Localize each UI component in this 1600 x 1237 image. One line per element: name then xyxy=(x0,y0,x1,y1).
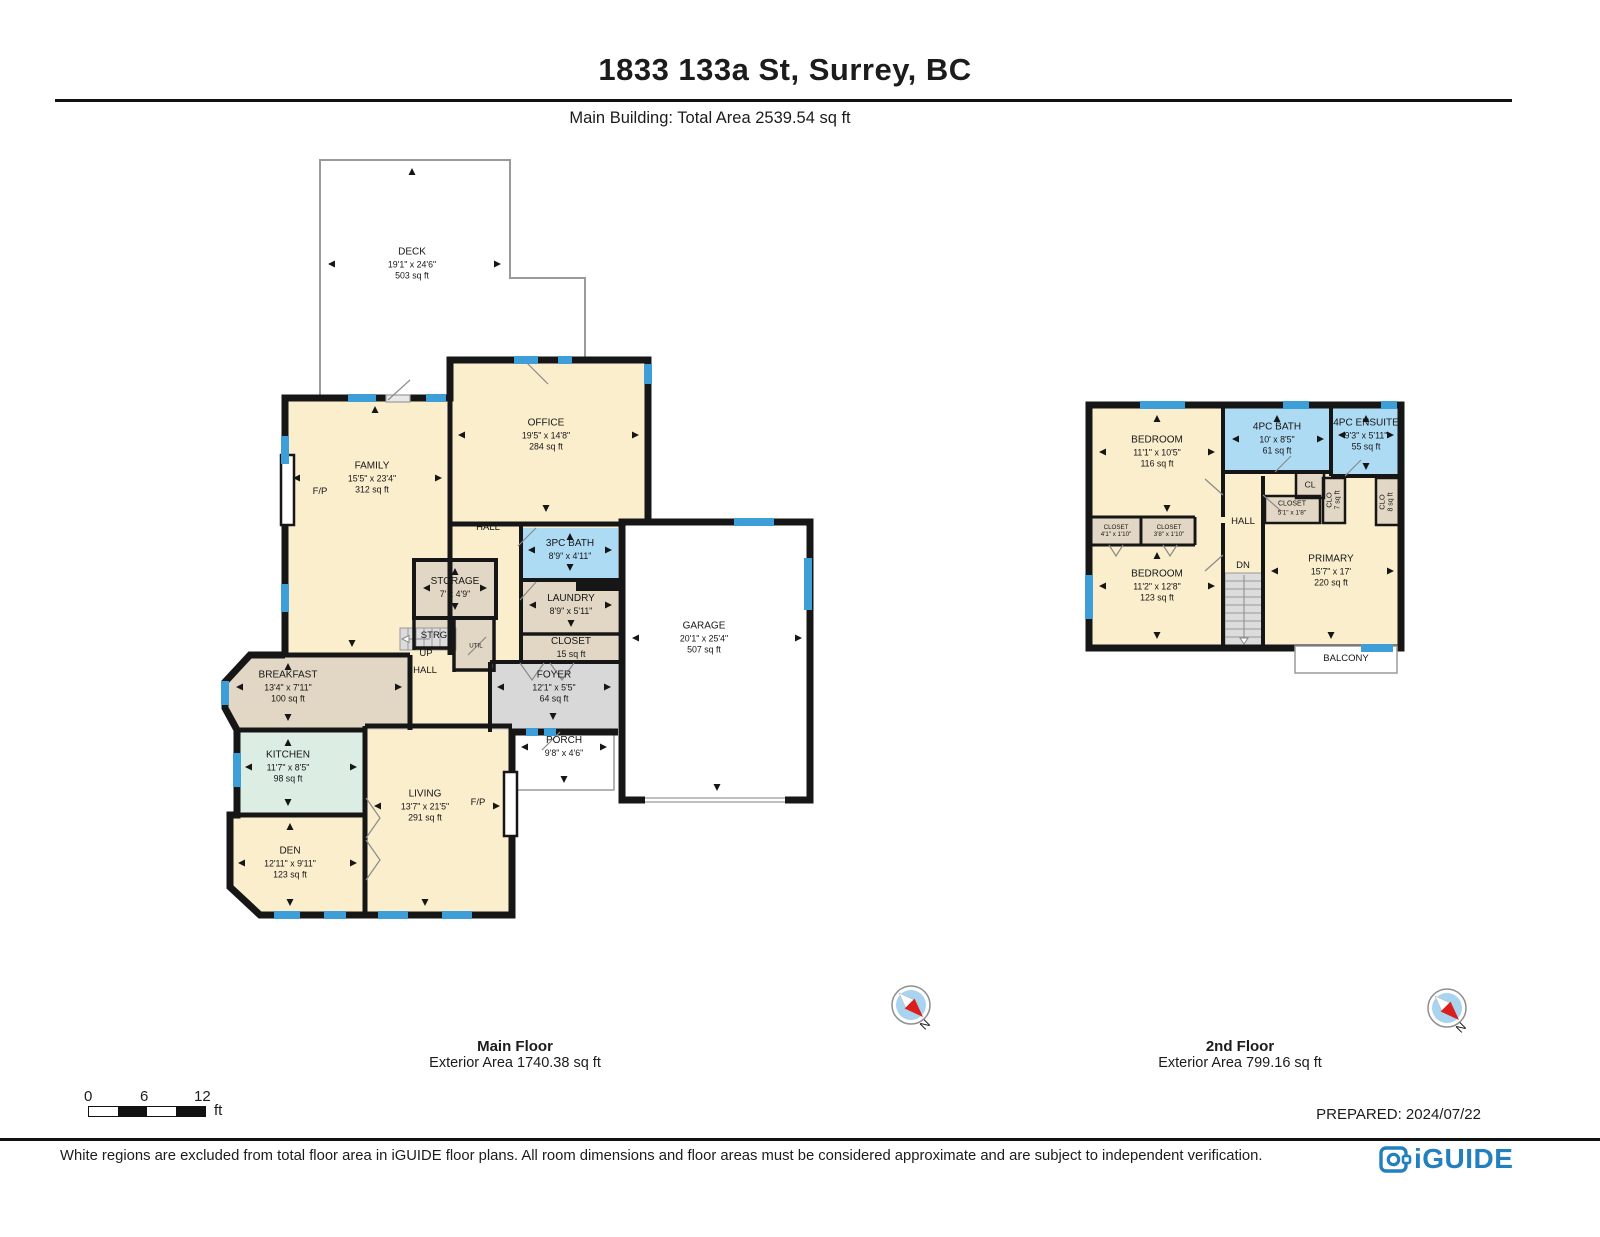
label-dn: DN xyxy=(1236,560,1250,572)
compass-icon: N xyxy=(1424,985,1470,1043)
room-label-closet-a: CLOSET4'1" x 1'10" xyxy=(1101,524,1132,538)
room-label-closet: CLOSET15 sq ft xyxy=(551,636,591,660)
room-label-closet-b: CLOSET3'8" x 1'10" xyxy=(1154,524,1185,538)
garage-door xyxy=(645,794,785,805)
room-label-hall-upper: HALL xyxy=(476,522,500,534)
compass-n-label: N xyxy=(1453,1020,1469,1036)
compass-icon: N xyxy=(888,982,934,1040)
room-label-office: OFFICE19'5" x 14'8"284 sq ft xyxy=(522,417,570,452)
room-label-storage: STORAGE7' x 4'9" xyxy=(431,576,480,600)
room-label-clo7: CLO7 sq ft xyxy=(1326,490,1343,509)
family-fireplace xyxy=(281,455,294,525)
compass-second: N xyxy=(1424,985,1470,1043)
iguide-logo-text: iGUIDE xyxy=(1414,1143,1513,1175)
scale-bar: 0 6 12 ft xyxy=(84,1088,284,1128)
second-floor-plan: BEDROOM11'1" x 10'5"116 sq ft 4PC BATH10… xyxy=(1085,395,1415,685)
main-floor-caption: Main Floor Exterior Area 1740.38 sq ft xyxy=(365,1038,665,1071)
room-label-deck: DECK19'1" x 24'6"503 sq ft xyxy=(388,246,436,281)
page-title: 1833 133a St, Surrey, BC xyxy=(0,52,1570,88)
room-label-balcony: BALCONY xyxy=(1323,653,1368,665)
room-label-den: DEN12'11" x 9'11"123 sq ft xyxy=(264,845,316,880)
room-label-bedroom1: BEDROOM11'1" x 10'5"116 sq ft xyxy=(1131,434,1183,469)
main-floor-drawing xyxy=(220,150,820,920)
compass-main: N xyxy=(888,982,934,1040)
room-label-ensuite: 4PC ENSUITE9'3" x 5'11"55 sq ft xyxy=(1333,417,1399,452)
wall-chunk xyxy=(576,578,620,591)
iguide-logo: iGUIDE xyxy=(1378,1141,1518,1181)
room-label-porch: PORCH9'8" x 4'6" xyxy=(545,735,583,759)
label-up: UP xyxy=(419,648,432,660)
garage-walls xyxy=(622,522,810,800)
room-label-primary: PRIMARY15'7" x 17'220 sq ft xyxy=(1308,553,1353,588)
label-fireplace-family: F/P xyxy=(313,486,328,498)
room-label-cl: CL xyxy=(1305,480,1316,491)
stairs-down xyxy=(1225,573,1263,645)
room-label-hall-lower: HALL xyxy=(413,665,437,677)
room-label-laundry: LAUNDRY8'9" x 5'11" xyxy=(547,593,595,617)
second-floor-caption: 2nd Floor Exterior Area 799.16 sq ft xyxy=(1090,1038,1390,1071)
room-label-util: UTIL xyxy=(469,642,482,649)
iguide-logo-icon xyxy=(1378,1141,1414,1177)
footer-rule xyxy=(0,1138,1600,1141)
room-label-breakfast: BREAKFAST13'4" x 7'11"100 sq ft xyxy=(259,669,318,704)
disclaimer-text: White regions are excluded from total fl… xyxy=(60,1148,1360,1164)
room-label-3pc-bath: 3PC BATH8'9" x 4'11" xyxy=(546,538,594,562)
living-fireplace xyxy=(504,772,517,836)
scale-unit: ft xyxy=(214,1102,222,1119)
room-label-bedroom2: BEDROOM11'2" x 12'8"123 sq ft xyxy=(1131,568,1183,603)
room-label-clo8: CLO8 sq ft xyxy=(1379,492,1396,511)
room-label-strg: STRG xyxy=(421,630,447,642)
room-label-foyer: FOYER12'1" x 5'5"64 sq ft xyxy=(532,669,575,704)
compass-n-label: N xyxy=(917,1017,933,1033)
room-label-hall2: HALL xyxy=(1231,516,1255,528)
room-label-garage: GARAGE20'1" x 25'4"507 sq ft xyxy=(680,620,728,655)
room-label-living: LIVING13'7" x 21'5"291 sq ft xyxy=(401,788,449,823)
main-floor-plan: DECK19'1" x 24'6"503 sq ft OFFICE19'5" x… xyxy=(220,150,820,920)
title-rule xyxy=(55,99,1512,102)
prepared-date: PREPARED: 2024/07/22 xyxy=(1125,1106,1481,1123)
floor-plan-page: 1833 133a St, Surrey, BC Main Building: … xyxy=(0,0,1600,1237)
room-label-4pc-bath: 4PC BATH10' x 8'5"61 sq ft xyxy=(1253,421,1301,456)
scale-bar-segments xyxy=(88,1106,206,1117)
room-label-family: FAMILY15'5" x 23'4"312 sq ft xyxy=(348,460,396,495)
room-label-closet-c: CLOSET5'1" x 1'8" xyxy=(1278,500,1306,517)
label-fireplace-living: F/P xyxy=(471,797,486,809)
building-total-area: Main Building: Total Area 2539.54 sq ft xyxy=(0,109,1420,128)
room-label-kitchen: KITCHEN11'7" x 8'5"98 sq ft xyxy=(266,749,310,784)
